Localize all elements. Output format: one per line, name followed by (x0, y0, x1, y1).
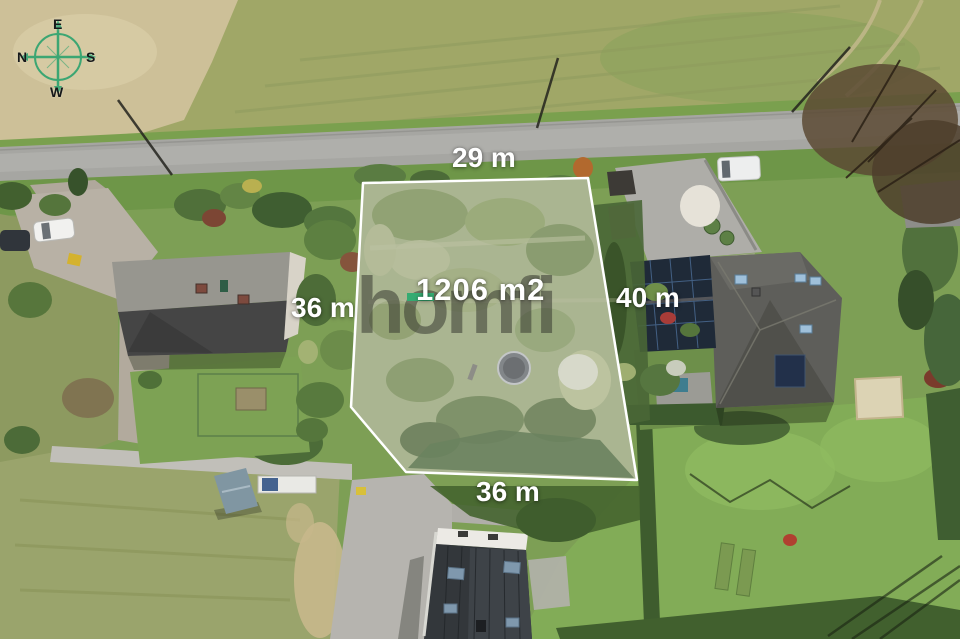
skylight (506, 618, 519, 627)
sand-pit (855, 377, 903, 419)
skylight (800, 325, 812, 333)
skylight (448, 567, 465, 579)
chimney (196, 284, 207, 293)
area-label: 1206 m2 (416, 272, 545, 308)
chimney (476, 620, 486, 632)
skylight (504, 561, 521, 573)
dimension-label-bottom: 36 m (476, 476, 540, 508)
compass-letter-south: S (86, 49, 95, 65)
dimension-label-right: 40 m (616, 282, 680, 314)
dimension-label-top: 29 m (452, 142, 516, 174)
flowering-tree (680, 185, 720, 227)
skylight (810, 277, 821, 285)
compass-letter-west: W (50, 84, 63, 100)
skylight (444, 604, 457, 613)
skylight (735, 275, 747, 284)
compass-letter-east: E (53, 16, 62, 32)
trailer (258, 476, 316, 493)
bin (220, 280, 228, 292)
yellow-item (356, 487, 366, 495)
left-house-garden (130, 356, 310, 464)
garage-roof (607, 170, 636, 196)
chimney (752, 288, 760, 296)
white-van (717, 156, 760, 181)
dimension-label-left: 36 m (291, 292, 355, 324)
solar-panel-annex (775, 355, 805, 387)
compass-letter-north: N (17, 49, 27, 65)
white-car (33, 218, 75, 243)
chimney (238, 295, 249, 304)
aerial-photo: homfi 1206 m2 29 m 36 m 40 m 36 m E S W … (0, 0, 960, 639)
skylight (795, 274, 806, 282)
dark-car (0, 230, 30, 251)
